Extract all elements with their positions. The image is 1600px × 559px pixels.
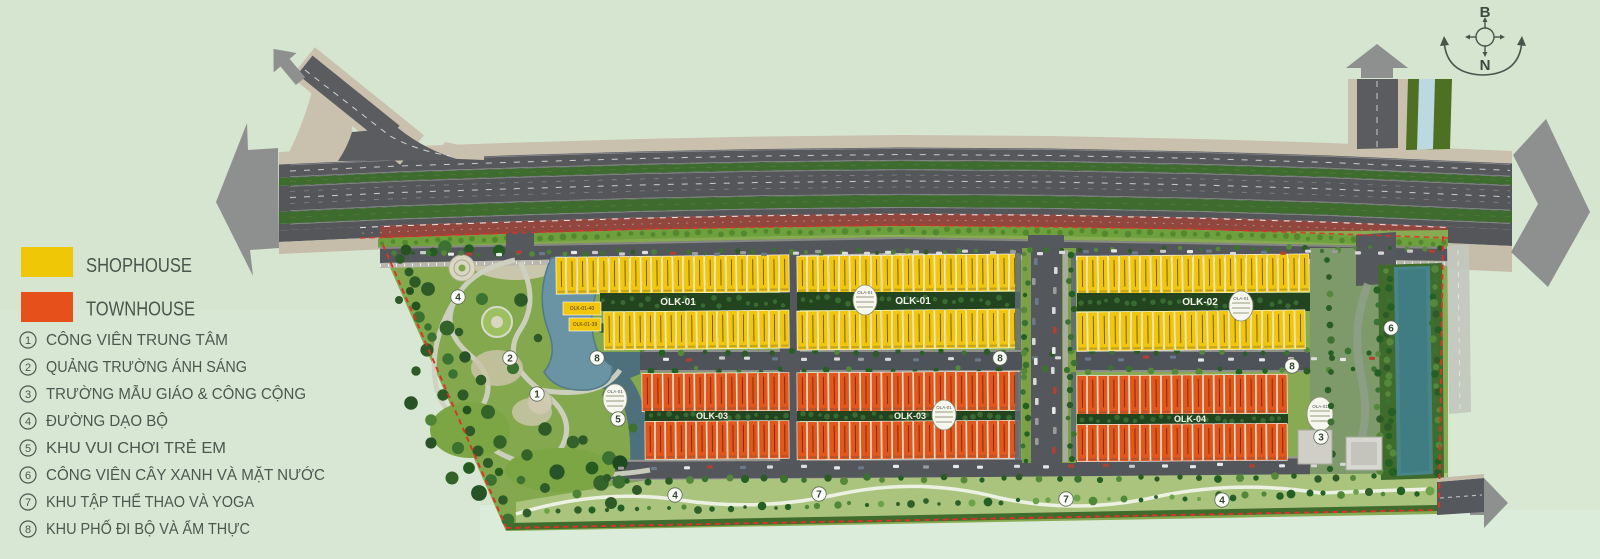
svg-text:OLA-01: OLA-01 bbox=[936, 405, 952, 410]
svg-text:ĐƯỜNG DẠO BỘ: ĐƯỜNG DẠO BỘ bbox=[46, 413, 168, 430]
svg-text:6: 6 bbox=[25, 470, 31, 482]
svg-text:KHU VUI CHƠI TRẺ EM: KHU VUI CHƠI TRẺ EM bbox=[46, 440, 226, 457]
svg-text:OLA-01: OLA-01 bbox=[607, 389, 623, 394]
svg-text:TRƯỜNG MẪU GIÁO & CÔNG CỘNG: TRƯỜNG MẪU GIÁO & CÔNG CỘNG bbox=[46, 386, 306, 403]
svg-text:CÔNG VIÊN CÂY XANH VÀ MẶT NƯỚC: CÔNG VIÊN CÂY XANH VÀ MẶT NƯỚC bbox=[46, 467, 325, 484]
svg-text:OLK-01-40: OLK-01-40 bbox=[570, 306, 595, 312]
svg-text:OLK-01-39: OLK-01-39 bbox=[573, 322, 598, 328]
svg-text:OLK-03: OLK-03 bbox=[894, 411, 926, 421]
svg-text:OLA-01: OLA-01 bbox=[857, 290, 873, 295]
svg-text:OLK-04: OLK-04 bbox=[1174, 414, 1206, 424]
svg-text:8: 8 bbox=[1289, 361, 1295, 372]
svg-text:4: 4 bbox=[1219, 495, 1225, 506]
svg-text:4: 4 bbox=[672, 490, 678, 501]
svg-text:KHU TẬP THỂ THAO VÀ YOGA: KHU TẬP THỂ THAO VÀ YOGA bbox=[46, 493, 255, 511]
svg-text:QUẢNG TRƯỜNG ÁNH SÁNG: QUẢNG TRƯỜNG ÁNH SÁNG bbox=[46, 359, 247, 376]
svg-text:B: B bbox=[1480, 4, 1491, 21]
svg-text:6: 6 bbox=[1388, 323, 1394, 334]
svg-text:1: 1 bbox=[534, 389, 540, 400]
svg-text:5: 5 bbox=[615, 414, 621, 425]
svg-text:OLK-02: OLK-02 bbox=[1182, 297, 1218, 308]
svg-text:TOWNHOUSE: TOWNHOUSE bbox=[86, 298, 195, 321]
svg-text:OLK-01: OLK-01 bbox=[660, 297, 696, 308]
svg-text:2: 2 bbox=[507, 353, 513, 364]
svg-text:SHOPHOUSE: SHOPHOUSE bbox=[86, 254, 192, 277]
svg-text:5: 5 bbox=[25, 443, 31, 455]
svg-text:KHU PHỐ ĐI BỘ VÀ ẨM THỰC: KHU PHỐ ĐI BỘ VÀ ẨM THỰC bbox=[46, 520, 250, 538]
svg-text:2: 2 bbox=[25, 362, 31, 374]
svg-text:7: 7 bbox=[1063, 494, 1069, 505]
svg-text:8: 8 bbox=[25, 524, 31, 536]
svg-text:4: 4 bbox=[25, 416, 31, 428]
svg-text:3: 3 bbox=[1318, 432, 1324, 443]
svg-text:8: 8 bbox=[997, 353, 1003, 364]
svg-text:7: 7 bbox=[25, 497, 31, 509]
svg-text:1: 1 bbox=[25, 335, 31, 347]
svg-text:4: 4 bbox=[455, 292, 461, 303]
svg-text:7: 7 bbox=[816, 489, 822, 500]
svg-text:OLK-01: OLK-01 bbox=[895, 296, 931, 307]
svg-text:OLA-01: OLA-01 bbox=[1312, 404, 1328, 409]
svg-text:OLA-01: OLA-01 bbox=[1233, 296, 1249, 301]
svg-text:8: 8 bbox=[594, 353, 600, 364]
svg-text:3: 3 bbox=[25, 389, 31, 401]
svg-text:N: N bbox=[1480, 57, 1491, 74]
svg-text:OLK-03: OLK-03 bbox=[696, 411, 728, 421]
svg-text:CÔNG VIÊN TRUNG TÂM: CÔNG VIÊN TRUNG TÂM bbox=[46, 332, 228, 349]
